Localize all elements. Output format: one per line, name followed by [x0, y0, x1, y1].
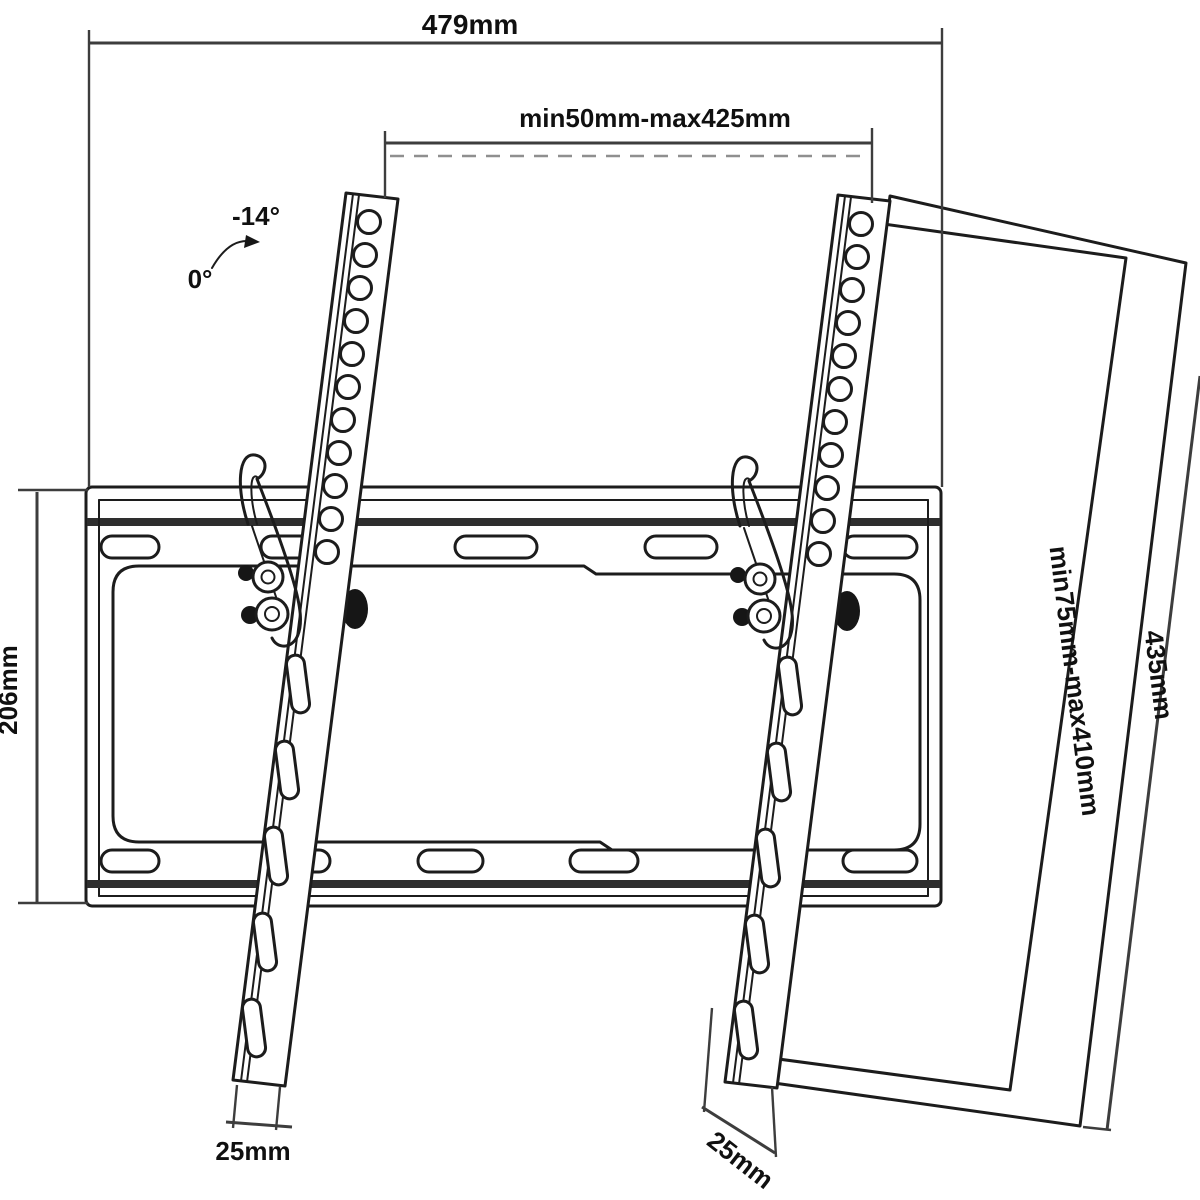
slot — [418, 850, 483, 872]
dim-tv-height — [1083, 376, 1200, 1130]
wall-mount-technical-drawing: 479mm min50mm-max425mm -14° 0° 206mm min… — [0, 0, 1200, 1200]
hole — [320, 508, 343, 531]
dim-line-25L — [226, 1122, 292, 1127]
hole — [328, 442, 351, 465]
dim-plate-height: 206mm — [0, 490, 88, 903]
dim-ext-25R-left — [704, 1008, 712, 1112]
hole — [354, 244, 377, 267]
dim-label-vesa-width: min50mm-max425mm — [519, 103, 791, 133]
tilt-arrow-icon — [212, 241, 248, 268]
hole — [337, 376, 360, 399]
slot — [843, 536, 917, 558]
hole — [324, 475, 347, 498]
slot — [101, 536, 159, 558]
hole — [341, 343, 364, 366]
dim-arm-width-left: 25mm — [215, 1085, 292, 1166]
hole — [345, 310, 368, 333]
slot — [101, 850, 159, 872]
hole — [316, 541, 339, 564]
dim-line-435 — [1107, 376, 1200, 1130]
dim-ext-25L-right — [276, 1087, 280, 1130]
dim-vesa-width: min50mm-max425mm — [385, 103, 872, 203]
tilt-arrowhead-icon — [244, 235, 260, 248]
tilt-annotation: -14° 0° — [188, 201, 280, 294]
washer-center — [262, 571, 275, 584]
washer-center — [265, 607, 279, 621]
dim-ext-25R-right — [772, 1087, 776, 1157]
dim-label-total-width: 479mm — [422, 9, 519, 40]
drawing-canvas: 479mm min50mm-max425mm -14° 0° 206mm min… — [0, 0, 1200, 1200]
hole — [349, 277, 372, 300]
slot — [843, 850, 917, 872]
dim-label-arm-width-left: 25mm — [215, 1136, 290, 1166]
tilt-angle-rest-label: 0° — [188, 264, 213, 294]
slot — [645, 536, 717, 558]
tilt-angle-max-label: -14° — [232, 201, 280, 231]
dim-label-arm-width-right: 25mm — [702, 1125, 780, 1195]
hole — [358, 211, 381, 234]
hole — [332, 409, 355, 432]
wall-plate-bottom-rail — [87, 880, 940, 888]
dim-label-tv-height: 435mm — [1139, 629, 1180, 722]
slot — [455, 536, 537, 558]
dim-label-plate-height: 206mm — [0, 645, 23, 735]
slot — [570, 850, 638, 872]
